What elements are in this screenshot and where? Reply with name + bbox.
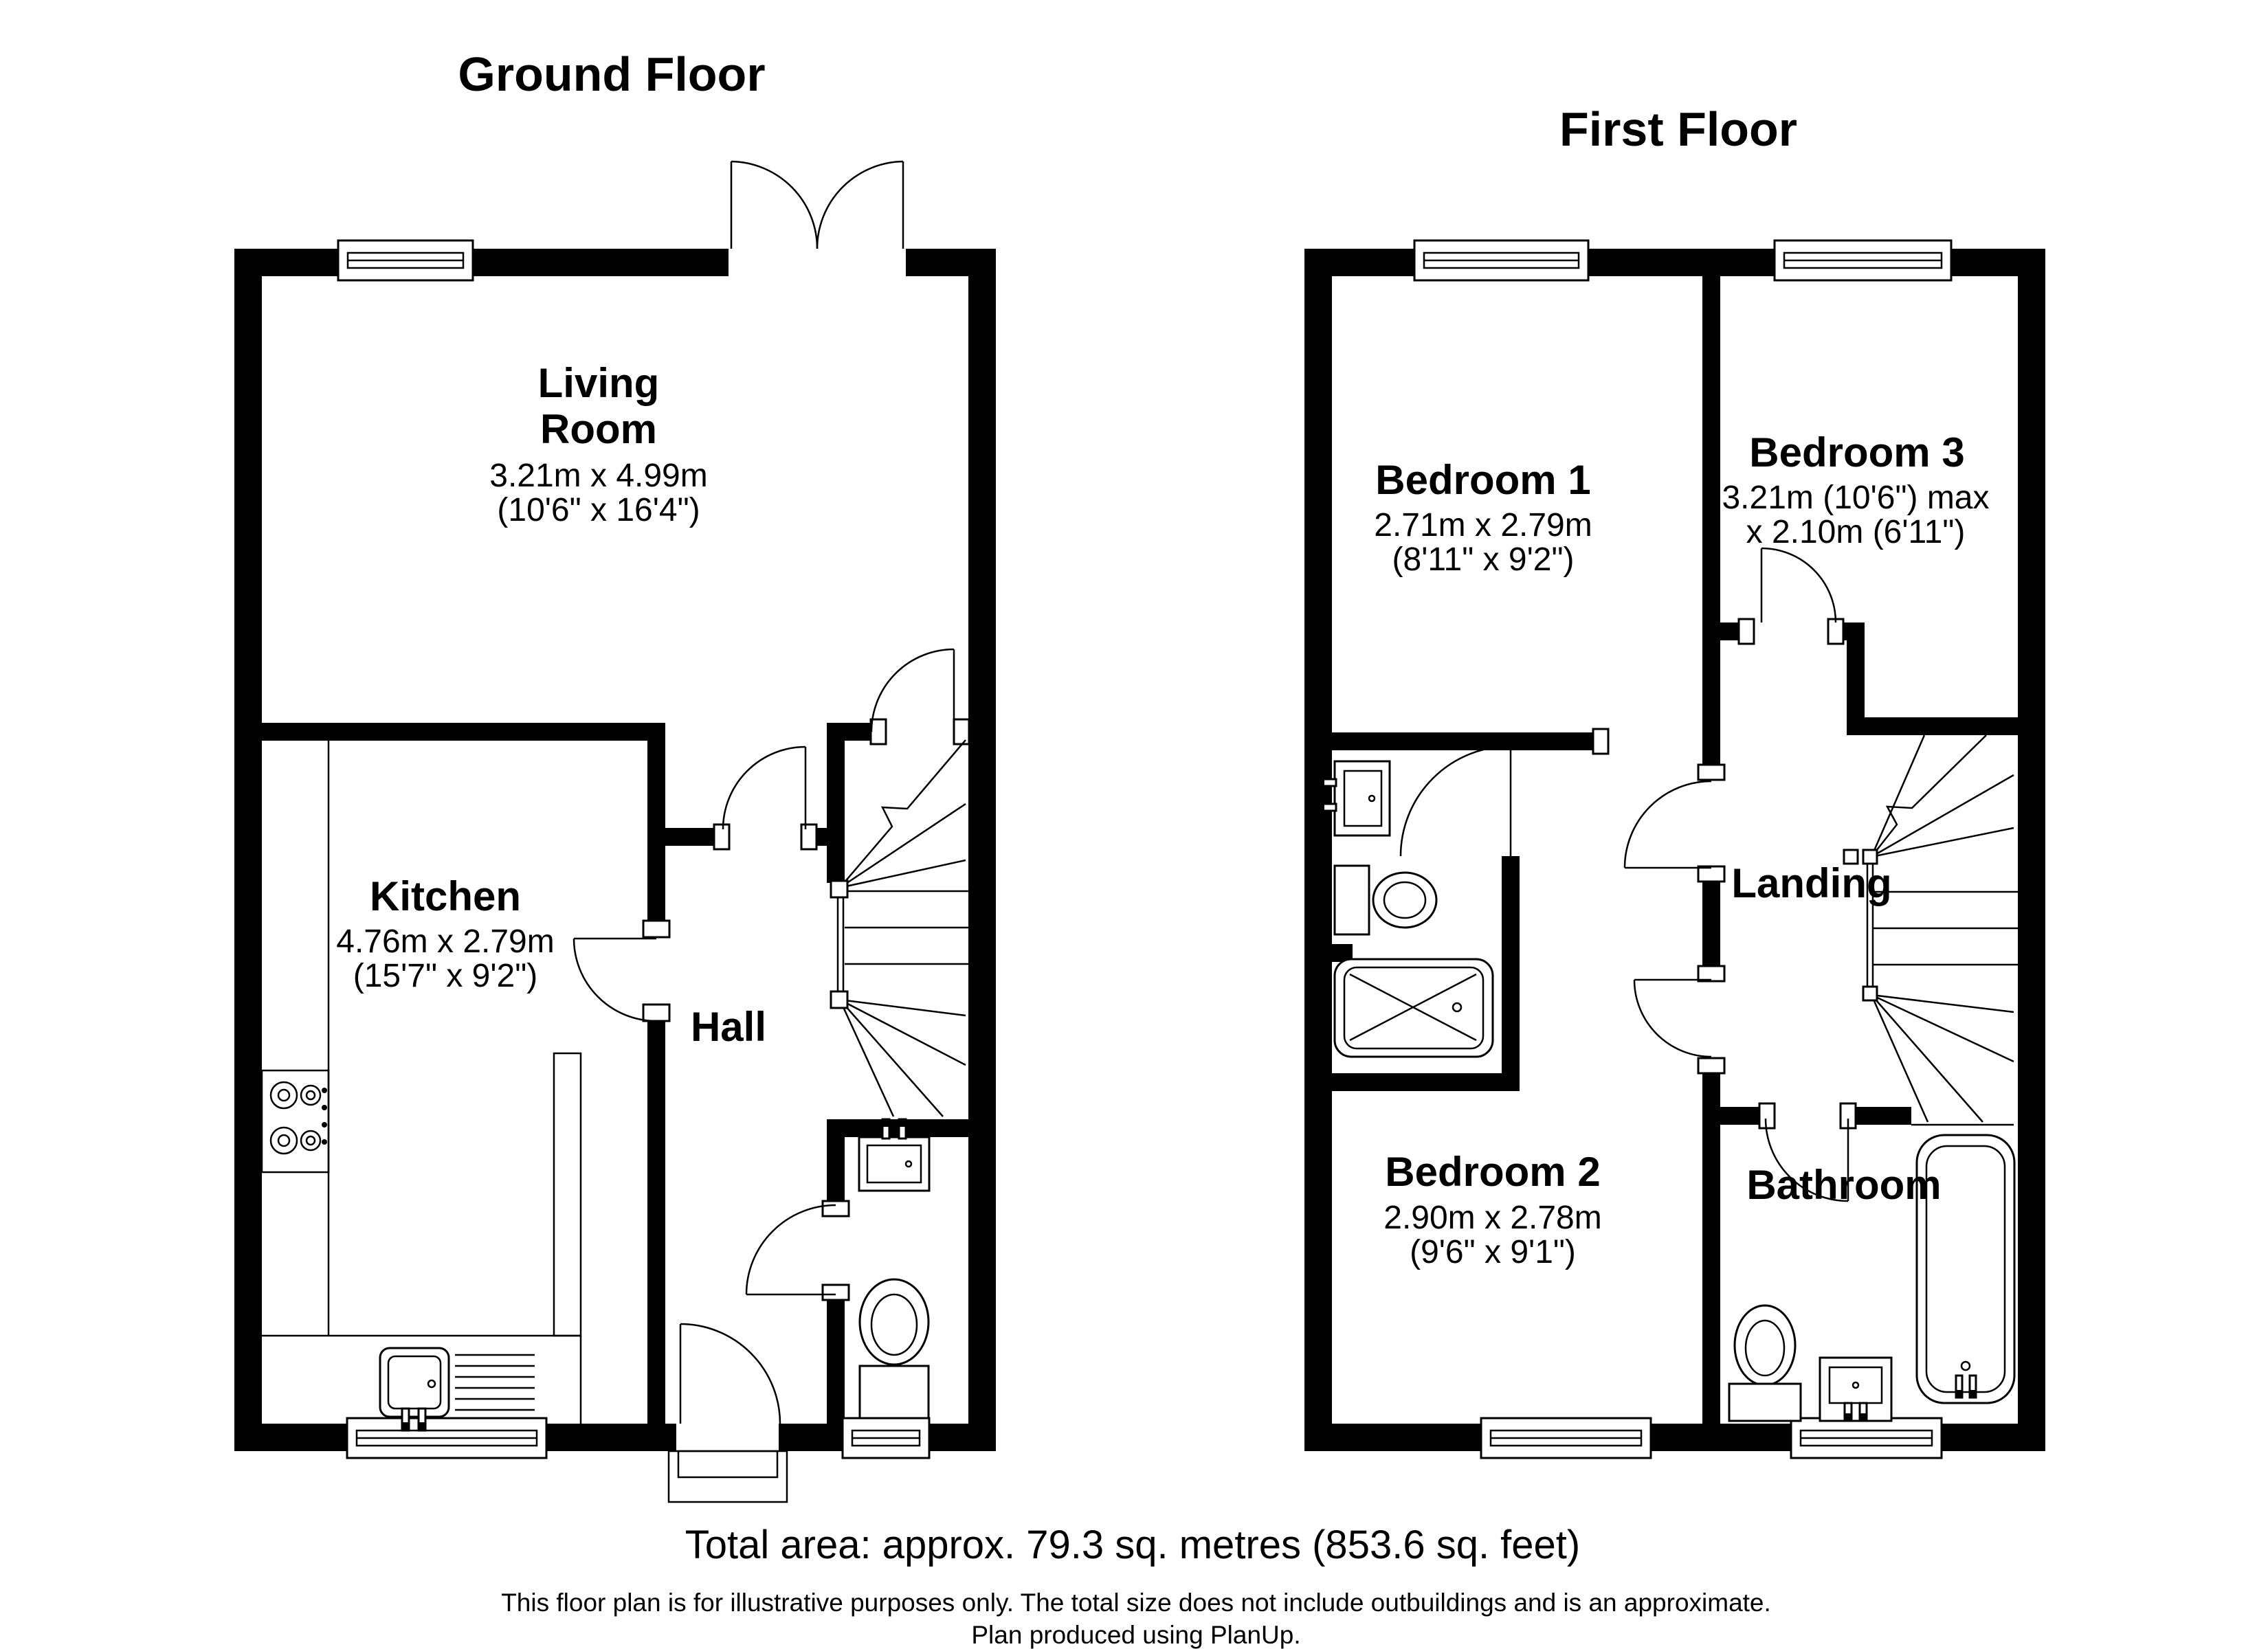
- living-room-door: [723, 747, 805, 829]
- wc-window: [843, 1418, 929, 1458]
- hall-label: Hall: [691, 1004, 766, 1050]
- kitchen-label: Kitchen: [370, 873, 521, 919]
- first-floor-stairs: [1844, 735, 2018, 1125]
- living-room-dim-metric: 3.21m x 4.99m: [489, 458, 707, 494]
- bathroom-sink: [1820, 1358, 1891, 1421]
- floorplan-drawing: Ground Floor: [0, 0, 2268, 1649]
- first-floor-title: First Floor: [1559, 102, 1797, 156]
- bathroom-toilet: [1729, 1305, 1801, 1421]
- credit-text: Plan produced using PlanUp.: [971, 1621, 1300, 1649]
- bedroom3-window: [1775, 240, 1951, 280]
- living-room-dim-imperial: (10'6" x 16'4"): [497, 492, 700, 528]
- ensuite-shower: [1335, 959, 1493, 1057]
- ground-floor-stairs: [831, 740, 968, 1117]
- bedroom3-label: Bedroom 3: [1749, 429, 1964, 475]
- kitchen-window: [347, 1418, 546, 1458]
- kitchen-tall-unit: [554, 1053, 581, 1336]
- stair-newel-post: [1863, 987, 1877, 1000]
- wc-toilet: [860, 1279, 929, 1418]
- hob: [262, 1070, 329, 1172]
- first-floor-plan: First Floor: [1304, 102, 2045, 1458]
- stair-newel-post: [831, 881, 847, 897]
- draining-board: [455, 1355, 535, 1410]
- bedroom3-dim-metric: 3.21m (10'6") max: [1722, 480, 1989, 516]
- total-area-text: Total area: approx. 79.3 sq. metres (853…: [685, 1523, 1580, 1567]
- bedroom2-label: Bedroom 2: [1385, 1149, 1600, 1195]
- ground-floor-title: Ground Floor: [458, 47, 765, 101]
- disclaimer-text: This floor plan is for illustrative purp…: [501, 1589, 1771, 1617]
- wc-door: [746, 1205, 836, 1294]
- living-room-window: [338, 240, 473, 280]
- living-room-label: Living: [538, 360, 660, 406]
- bedroom1-label: Bedroom 1: [1375, 457, 1590, 503]
- bedroom1-window: [1414, 240, 1588, 280]
- ensuite-toilet: [1335, 866, 1436, 934]
- patio-french-doors: [731, 161, 903, 249]
- bedroom2-window: [1481, 1418, 1651, 1458]
- porch-step: [669, 1451, 787, 1502]
- ensuite-door: [1401, 746, 1511, 856]
- bedroom1-dim-metric: 2.71m x 2.79m: [1374, 507, 1592, 543]
- footer: Total area: approx. 79.3 sq. metres (853…: [501, 1523, 1771, 1649]
- bedroom3-dim-imperial: x 2.10m (6'11"): [1746, 514, 1966, 550]
- kitchen-dim-imperial: (15'7" x 9'2"): [353, 958, 538, 994]
- bedroom1-dim-imperial: (8'11" x 9'2"): [1392, 541, 1575, 578]
- bathroom-label: Bathroom: [1746, 1162, 1941, 1208]
- landing-label: Landing: [1731, 860, 1891, 906]
- bedroom2-door: [1634, 980, 1711, 1057]
- bedroom2-dim-metric: 2.90m x 2.78m: [1383, 1200, 1601, 1236]
- floorplan-page: Ground Floor: [0, 0, 2268, 1649]
- ground-floor-plan: Ground Floor: [234, 47, 996, 1502]
- bathroom-window: [1791, 1418, 1942, 1458]
- bedroom1-door: [1625, 781, 1711, 868]
- stair-newel-post: [831, 991, 847, 1008]
- bedroom2-dim-imperial: (9'6" x 9'1"): [1410, 1234, 1576, 1270]
- bedroom3-door: [1761, 548, 1836, 622]
- living-room-label-2: Room: [540, 406, 657, 452]
- front-door: [680, 1324, 780, 1424]
- kitchen-dim-metric: 4.76m x 2.79m: [336, 923, 554, 960]
- kitchen-counter: [262, 741, 581, 1424]
